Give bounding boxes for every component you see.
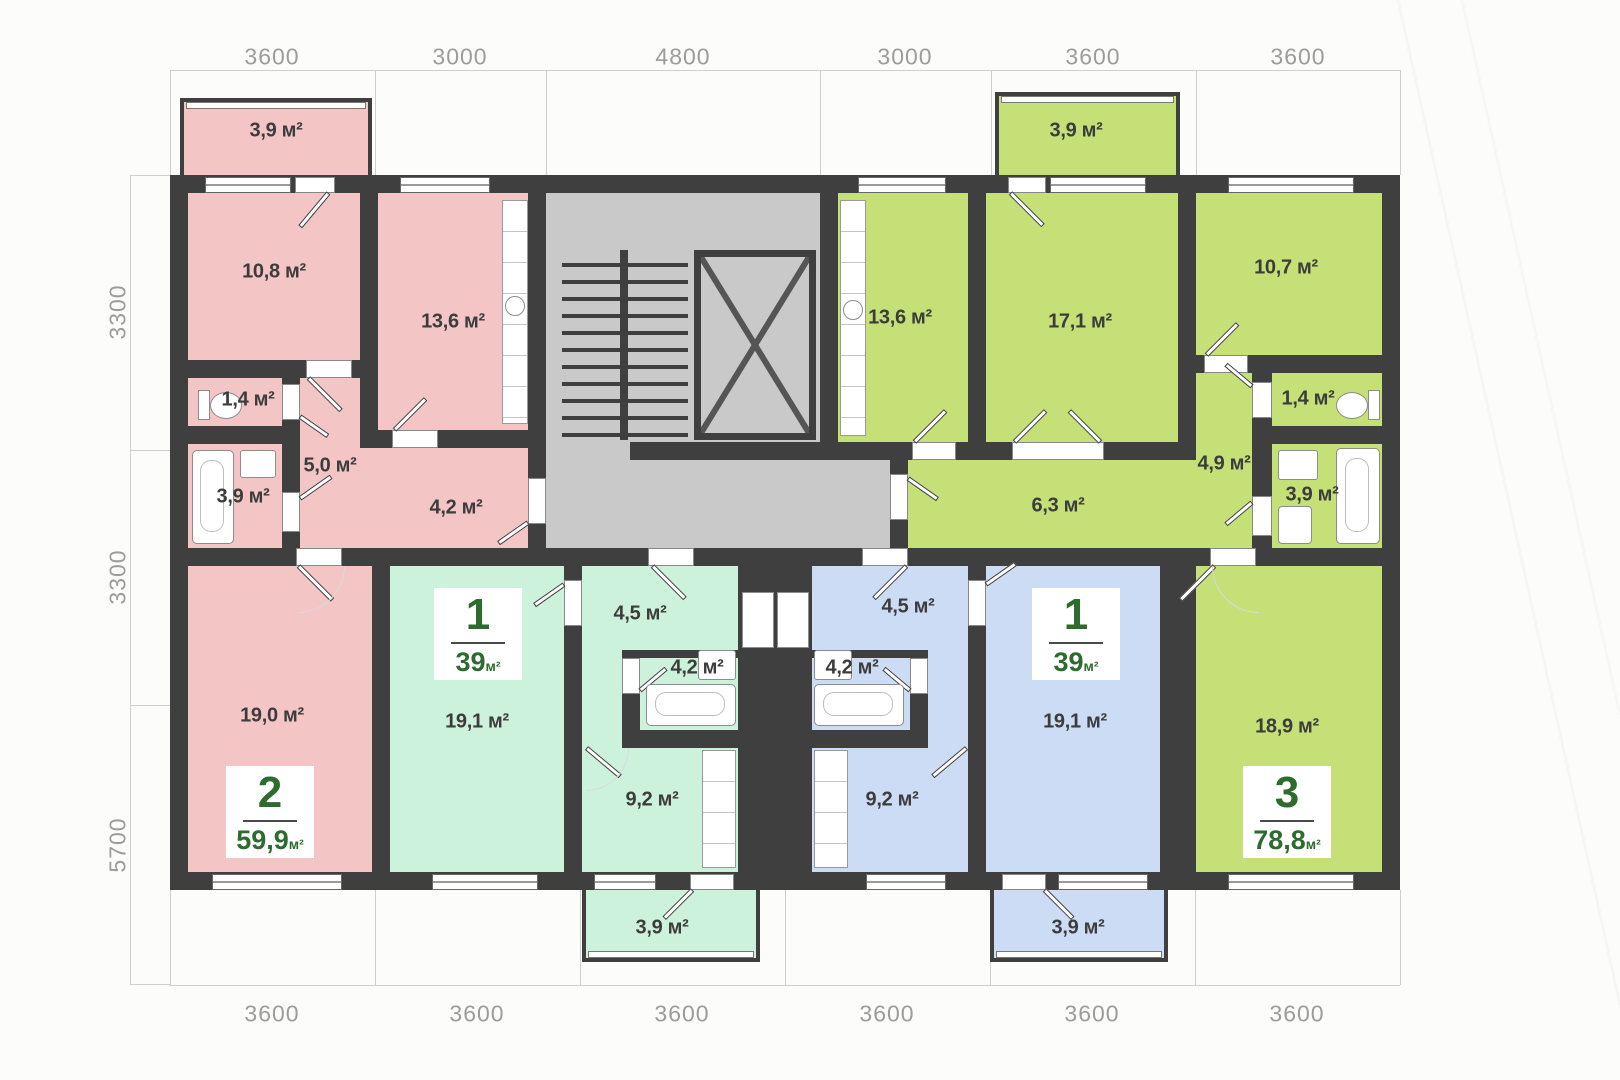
- window: [858, 177, 946, 193]
- dim-bottom-1: 3600: [244, 1001, 299, 1028]
- dim-line-bottom: [170, 985, 1400, 986]
- elevator-cross-icon: [701, 257, 809, 433]
- room-area-label: 6,3 м²: [1031, 495, 1084, 518]
- room-area-label: 4,2 м²: [429, 497, 482, 520]
- room-area-label: 5,0 м²: [303, 455, 356, 478]
- window: [400, 177, 490, 193]
- wardrobe: [777, 592, 809, 648]
- apartment-total-area: 59,9: [236, 825, 289, 855]
- toilet-tank: [1368, 390, 1380, 420]
- apartment-total-area: 39: [455, 647, 485, 677]
- bathtub-basin: [655, 692, 725, 716]
- dim-top-1: 3600: [244, 44, 299, 71]
- window: [1058, 874, 1148, 890]
- room-area-label: 9,2 м²: [625, 789, 678, 812]
- window: [594, 874, 656, 890]
- entrance-door-opening: [528, 478, 546, 524]
- apartment-total-area: 78,8: [1253, 825, 1306, 855]
- dim-tick: [375, 70, 376, 175]
- room-area-label: 4,9 м²: [1197, 453, 1250, 476]
- apartment-badge-lime: 3 78,8м²: [1243, 766, 1331, 858]
- apartment-badge-mint: 1 39м²: [434, 588, 522, 680]
- dim-line-top: [170, 70, 1400, 71]
- stair-flight-left: [562, 250, 622, 440]
- window: [432, 874, 538, 890]
- apartment-total-area: 39: [1053, 647, 1083, 677]
- dim-left-1: 3300: [105, 284, 132, 339]
- dim-tick: [130, 450, 170, 451]
- balcony-door-opening: [295, 177, 335, 193]
- room-area-label: 9,2 м²: [865, 789, 918, 812]
- badge-divider: [243, 820, 297, 822]
- bathtub-basin: [1345, 458, 1369, 532]
- dim-tick: [1400, 890, 1401, 985]
- door-opening: [282, 492, 300, 532]
- dim-bottom-3: 3600: [654, 1001, 709, 1028]
- door-opening: [1210, 548, 1256, 566]
- kitchen-sink: [505, 296, 525, 316]
- dim-bottom-2: 3600: [449, 1001, 504, 1028]
- room-area-label: 4,2 м²: [670, 657, 723, 680]
- dim-tick: [130, 705, 170, 706]
- area-unit: м²: [1084, 658, 1099, 674]
- room-area-label: 1,4 м²: [1281, 388, 1334, 411]
- room-area-label: 4,5 м²: [881, 596, 934, 619]
- dim-tick: [130, 175, 170, 176]
- room-area-label: 4,2 м²: [825, 657, 878, 680]
- door-opening: [968, 580, 986, 626]
- apartment-badge-blue: 1 39м²: [1032, 588, 1120, 680]
- balcony-door-opening: [1008, 177, 1046, 193]
- door-opening: [392, 430, 438, 448]
- wardrobe: [742, 592, 774, 648]
- dim-tick: [1195, 890, 1196, 985]
- door-opening: [306, 360, 352, 378]
- room-area-label: 4,5 м²: [613, 603, 666, 626]
- area-unit: м²: [1306, 836, 1321, 852]
- dim-tick: [130, 984, 170, 985]
- room-area-label: 17,1 м²: [1048, 311, 1112, 334]
- balcony-door-opening: [690, 874, 734, 890]
- door-opening: [1252, 496, 1272, 536]
- apartment-badge-pink: 2 59,9м²: [226, 766, 314, 858]
- dim-tick: [170, 70, 171, 175]
- room-area-label: 13,6 м²: [868, 307, 932, 330]
- kitchen-counter: [702, 750, 736, 868]
- window: [205, 177, 291, 193]
- apartment-rooms-count: 3: [1275, 771, 1299, 815]
- room-area-label: 3,9 м²: [1051, 917, 1104, 940]
- door-opening: [910, 658, 928, 694]
- bathtub: [1336, 448, 1380, 544]
- toilet-bowl: [1336, 392, 1368, 419]
- dim-tick: [580, 890, 581, 985]
- apartment-rooms-count: 1: [1064, 593, 1088, 637]
- balcony-glazing: [996, 951, 1162, 958]
- kitchen-sink: [843, 300, 863, 320]
- elevator-shaft: [694, 250, 816, 440]
- door-opening: [622, 658, 640, 694]
- sink: [240, 450, 276, 478]
- dim-tick: [785, 890, 786, 985]
- window: [212, 874, 342, 890]
- room-area-label: 3,9 м²: [635, 917, 688, 940]
- apartment-rooms-count: 1: [466, 593, 490, 637]
- balcony-glazing: [186, 102, 366, 109]
- dim-top-6: 3600: [1270, 44, 1325, 71]
- window: [1050, 177, 1146, 193]
- dim-tick: [820, 70, 821, 175]
- toilet-tank: [198, 390, 210, 420]
- dim-tick: [170, 890, 171, 985]
- door-opening: [282, 384, 300, 420]
- stair-core-passage: [546, 442, 630, 460]
- dim-left-3: 5700: [105, 817, 132, 872]
- door-opening: [564, 580, 582, 626]
- dim-tick: [1400, 70, 1401, 175]
- dim-tick: [1196, 70, 1197, 175]
- entrance-door-opening: [862, 548, 908, 566]
- washing-machine: [1278, 506, 1312, 544]
- area-unit: м²: [486, 658, 501, 674]
- room-area-label: 19,0 м²: [240, 705, 304, 728]
- balcony-door-opening: [1002, 874, 1046, 890]
- bathtub-basin: [823, 692, 893, 716]
- room-area-label: 3,9 м²: [1285, 484, 1338, 507]
- sink: [1278, 450, 1318, 480]
- stair-flight-right: [628, 250, 688, 440]
- window: [866, 874, 946, 890]
- room-area-label: 3,9 м²: [216, 486, 269, 509]
- dim-tick: [991, 70, 992, 175]
- door-opening: [1252, 382, 1272, 418]
- room-pink-hall-connector: [360, 448, 378, 548]
- badge-divider: [451, 642, 505, 644]
- entrance-door-opening: [648, 548, 694, 566]
- room-mint-passage: [582, 650, 622, 748]
- bathtub: [814, 684, 904, 726]
- kitchen-counter: [814, 750, 848, 868]
- entrance-corridor: [546, 460, 890, 548]
- window: [1228, 874, 1354, 890]
- balcony-glazing: [1001, 96, 1174, 103]
- double-door-opening: [1012, 442, 1104, 460]
- room-area-label: 13,6 м²: [421, 311, 485, 334]
- badge-divider: [1049, 642, 1103, 644]
- room-area-label: 3,9 м²: [1049, 120, 1102, 143]
- apartment-rooms-count: 2: [258, 771, 282, 815]
- room-area-label: 19,1 м²: [445, 711, 509, 734]
- dim-top-2: 3000: [432, 44, 487, 71]
- room-area-label: 10,8 м²: [242, 261, 306, 284]
- room-area-label: 19,1 м²: [1043, 711, 1107, 734]
- door-opening: [296, 548, 342, 566]
- dim-left-2: 3300: [105, 549, 132, 604]
- area-unit: м²: [289, 836, 304, 852]
- balcony-glazing: [588, 951, 754, 958]
- dim-bottom-5: 3600: [1064, 1001, 1119, 1028]
- room-area-label: 1,4 м²: [221, 389, 274, 412]
- room-area-label: 18,9 м²: [1255, 716, 1319, 739]
- dim-tick: [546, 70, 547, 175]
- dim-top-5: 3600: [1065, 44, 1120, 71]
- stair-stringer: [620, 250, 628, 440]
- door-opening: [912, 442, 956, 460]
- dim-top-4: 3000: [877, 44, 932, 71]
- entrance-door-opening: [890, 474, 908, 520]
- room-area-label: 10,7 м²: [1254, 257, 1318, 280]
- dim-tick: [375, 890, 376, 985]
- room-area-label: 3,9 м²: [249, 120, 302, 143]
- dim-bottom-4: 3600: [859, 1001, 914, 1028]
- floor-plan: 3600 3000 4800 3000 3600 3600 3300 3300 …: [0, 0, 1620, 1080]
- room-blue-passage: [928, 650, 968, 748]
- window: [1228, 177, 1354, 193]
- bathtub: [646, 684, 736, 726]
- dim-top-3: 4800: [655, 44, 710, 71]
- dim-bottom-6: 3600: [1269, 1001, 1324, 1028]
- badge-divider: [1260, 820, 1314, 822]
